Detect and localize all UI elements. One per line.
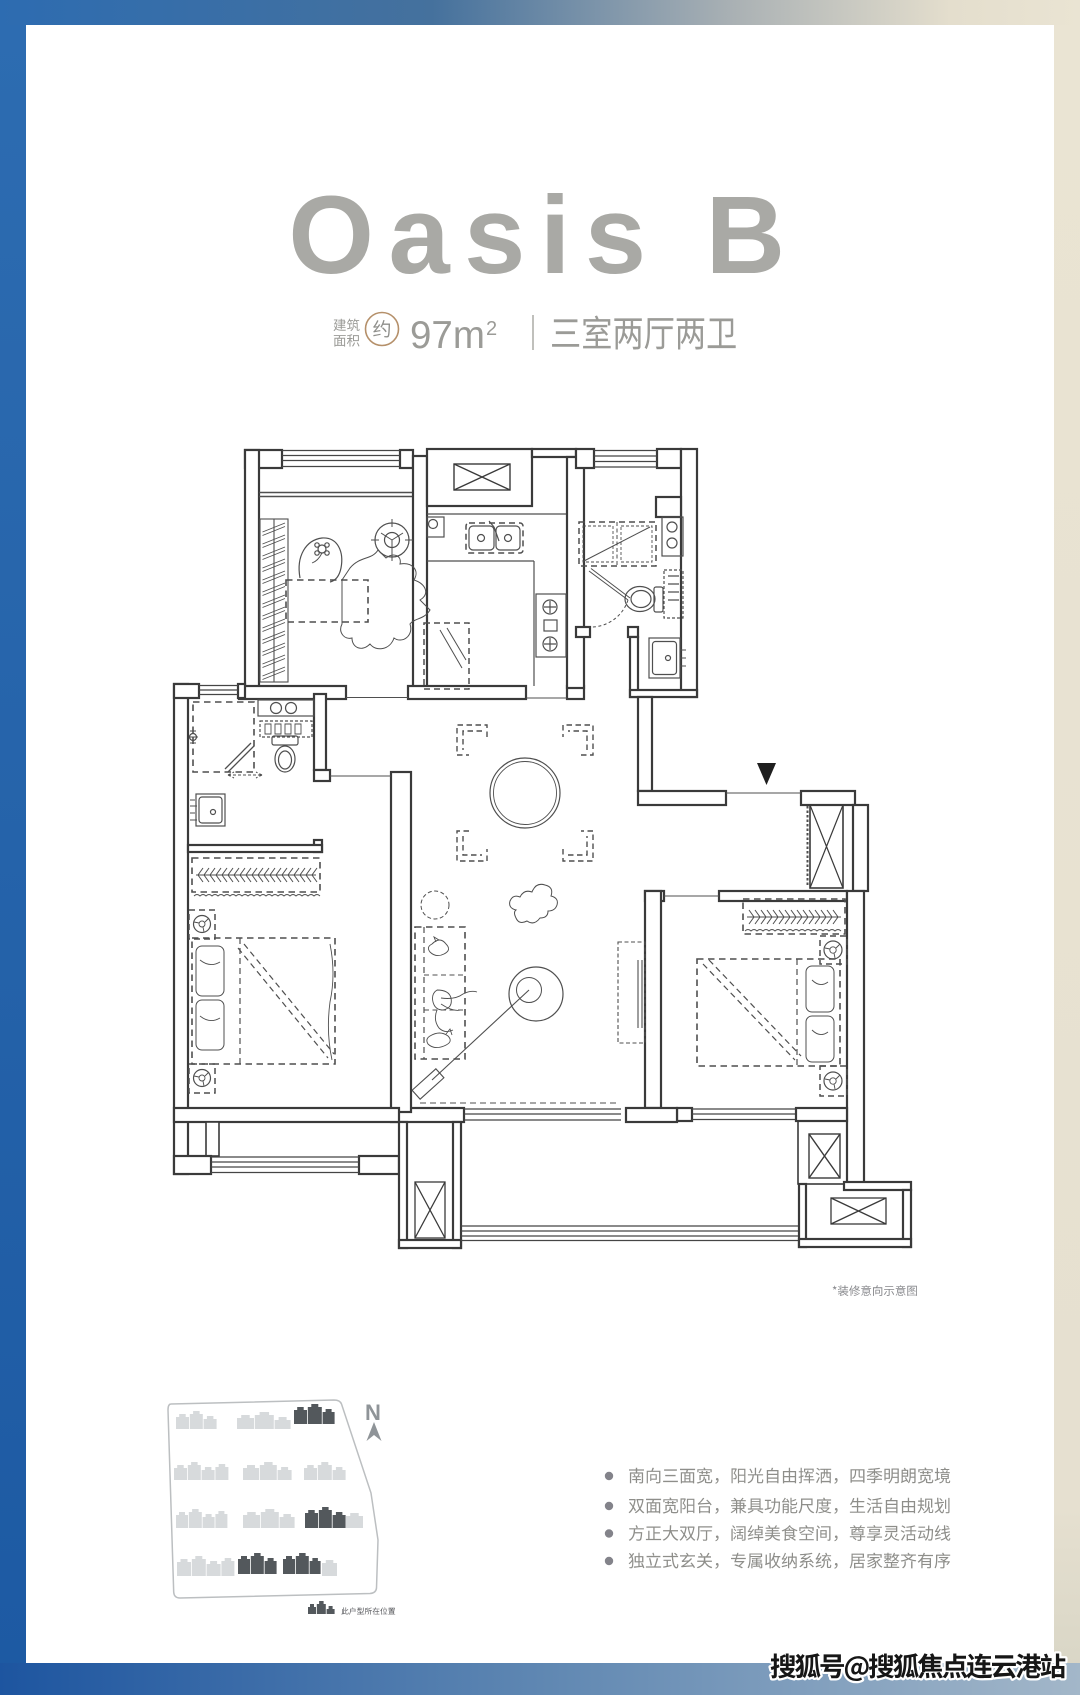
svg-text:N: N (365, 1400, 381, 1425)
svg-text:97m: 97m (410, 314, 485, 357)
svg-text:Oasis B: Oasis B (288, 174, 799, 297)
svg-text:2: 2 (486, 318, 497, 340)
